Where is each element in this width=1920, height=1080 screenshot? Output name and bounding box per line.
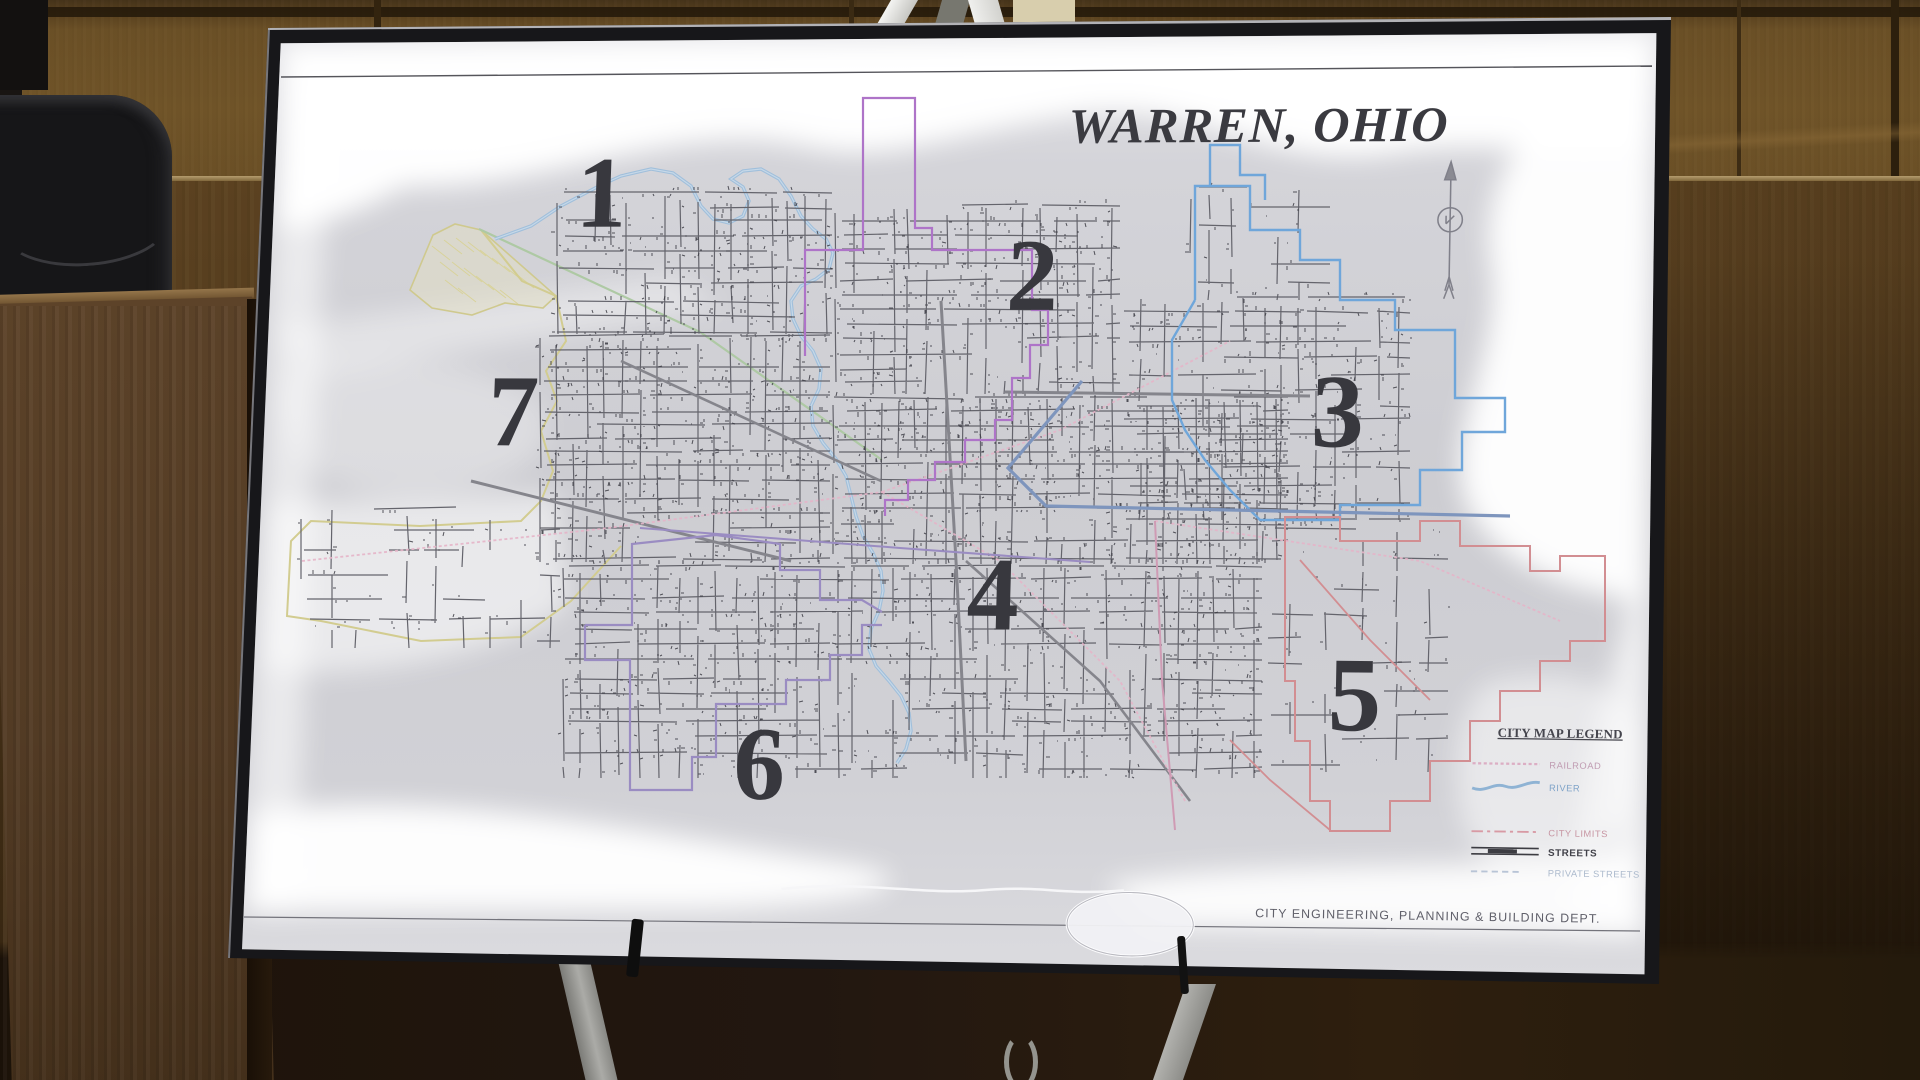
svg-text:1: 1 xyxy=(575,136,630,248)
svg-text:WARREN, OHIO: WARREN, OHIO xyxy=(1068,97,1449,153)
svg-text:CITY LIMITS: CITY LIMITS xyxy=(1548,828,1608,839)
svg-text:RAILROAD: RAILROAD xyxy=(1549,760,1601,771)
svg-text:CITY MAP LEGEND: CITY MAP LEGEND xyxy=(1498,725,1623,742)
svg-text:5: 5 xyxy=(1327,635,1383,753)
svg-text:7: 7 xyxy=(486,355,541,469)
svg-text:4: 4 xyxy=(965,536,1020,652)
svg-text:6: 6 xyxy=(732,706,787,822)
svg-text:3: 3 xyxy=(1310,353,1365,469)
svg-text:PRIVATE STREETS: PRIVATE STREETS xyxy=(1548,868,1640,879)
svg-text:STREETS: STREETS xyxy=(1548,848,1597,860)
svg-text:RIVER: RIVER xyxy=(1549,783,1580,793)
svg-text:2: 2 xyxy=(1005,219,1060,333)
